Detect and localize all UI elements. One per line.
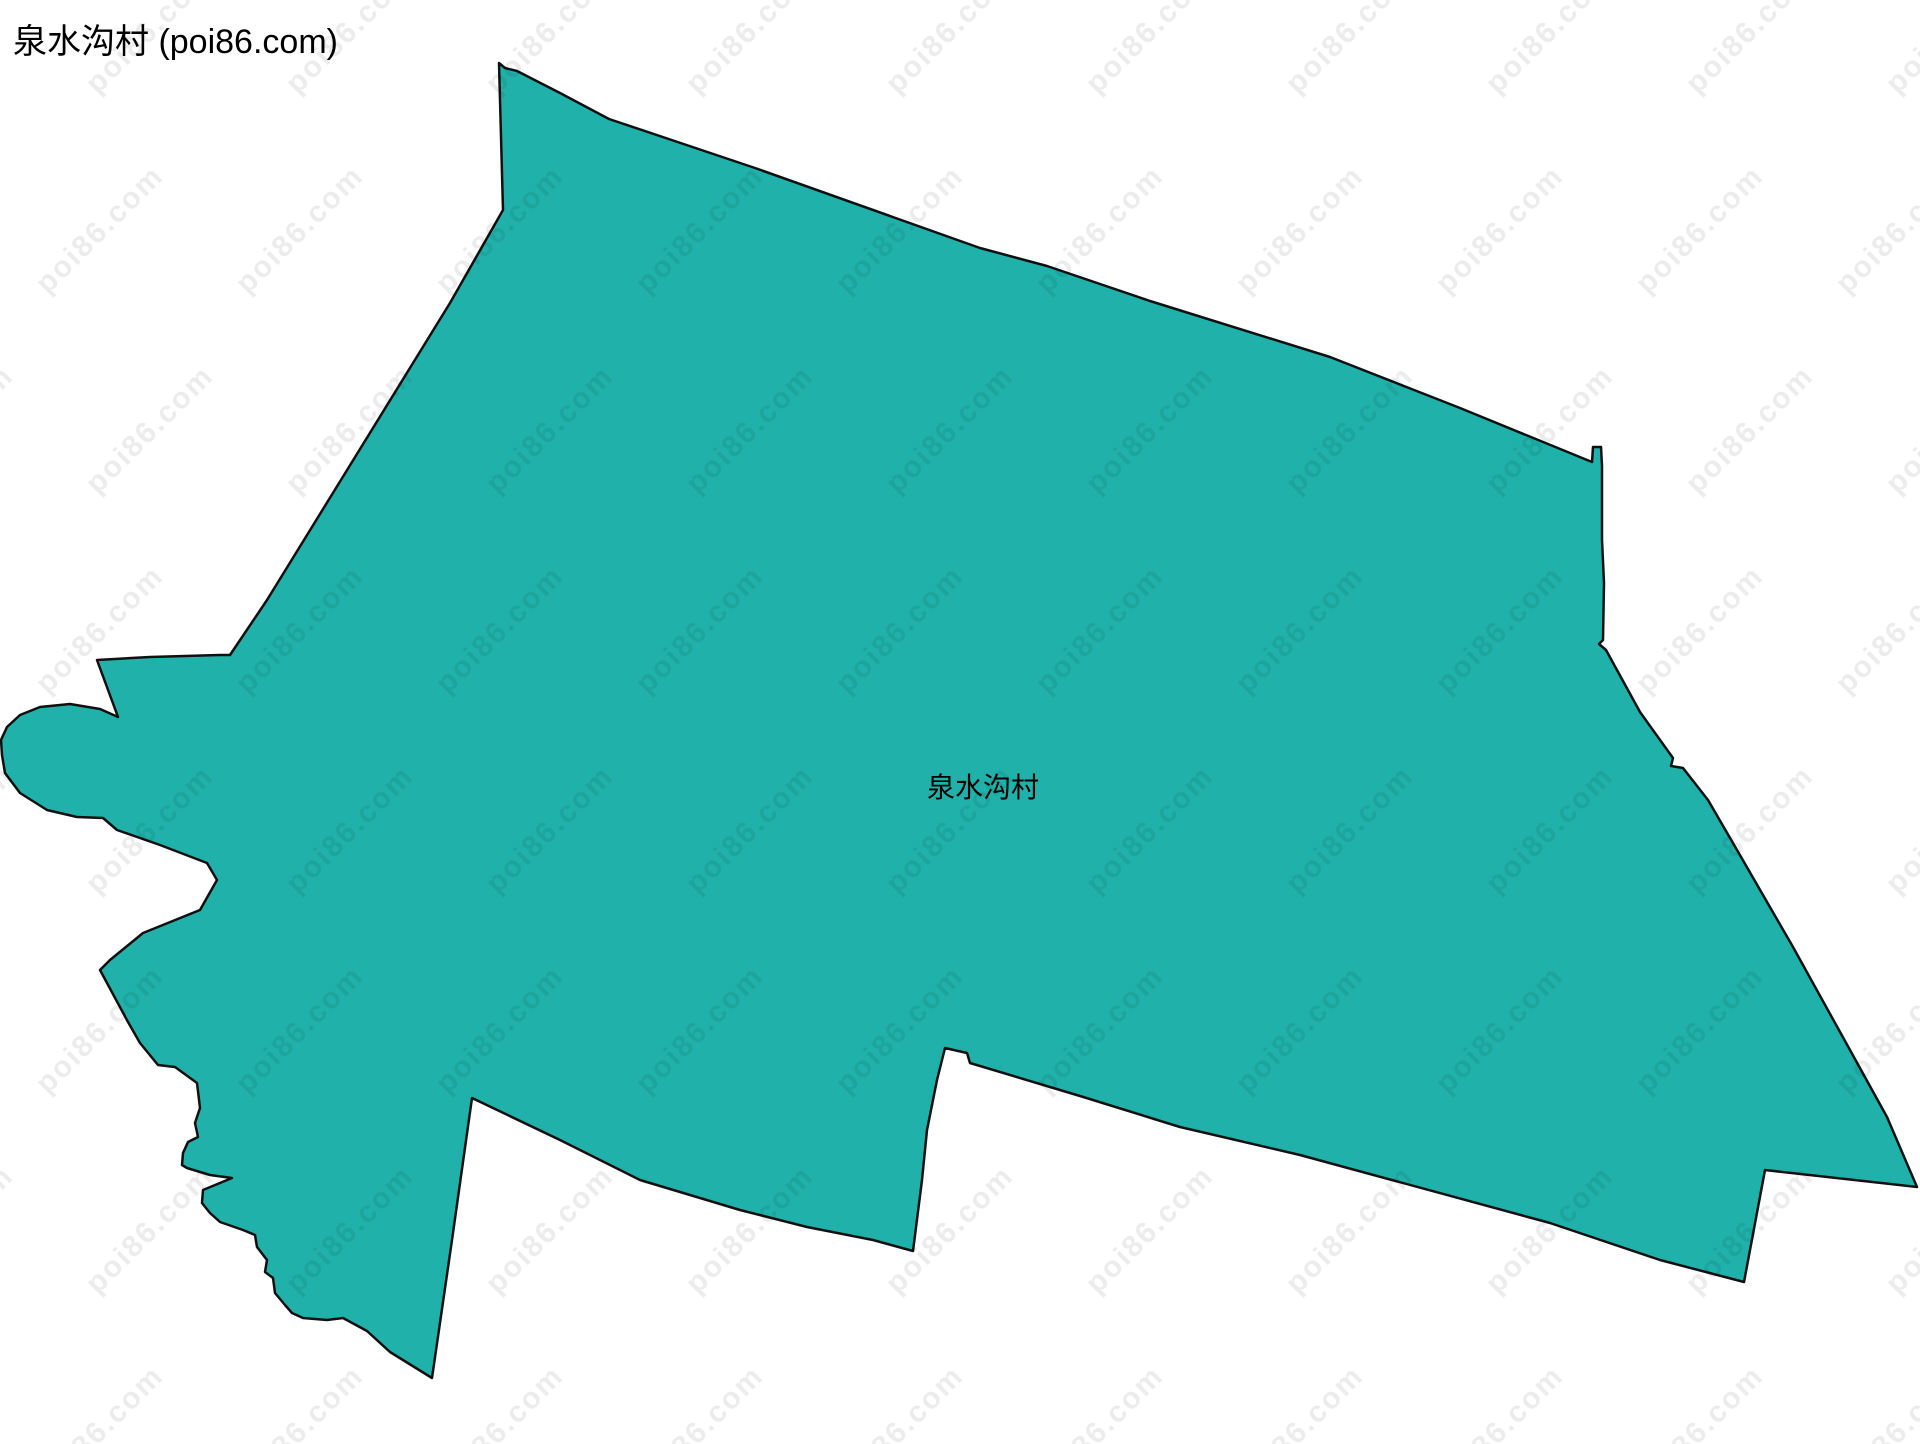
- region-label: 泉水沟村: [927, 766, 1039, 806]
- map-canvas: poi86.compoi86.compoi86.compoi86.compoi8…: [0, 0, 1920, 1444]
- region-polygon: [1, 63, 1917, 1378]
- region-map-svg: [0, 0, 1920, 1444]
- page-title: 泉水沟村 (poi86.com): [13, 14, 338, 63]
